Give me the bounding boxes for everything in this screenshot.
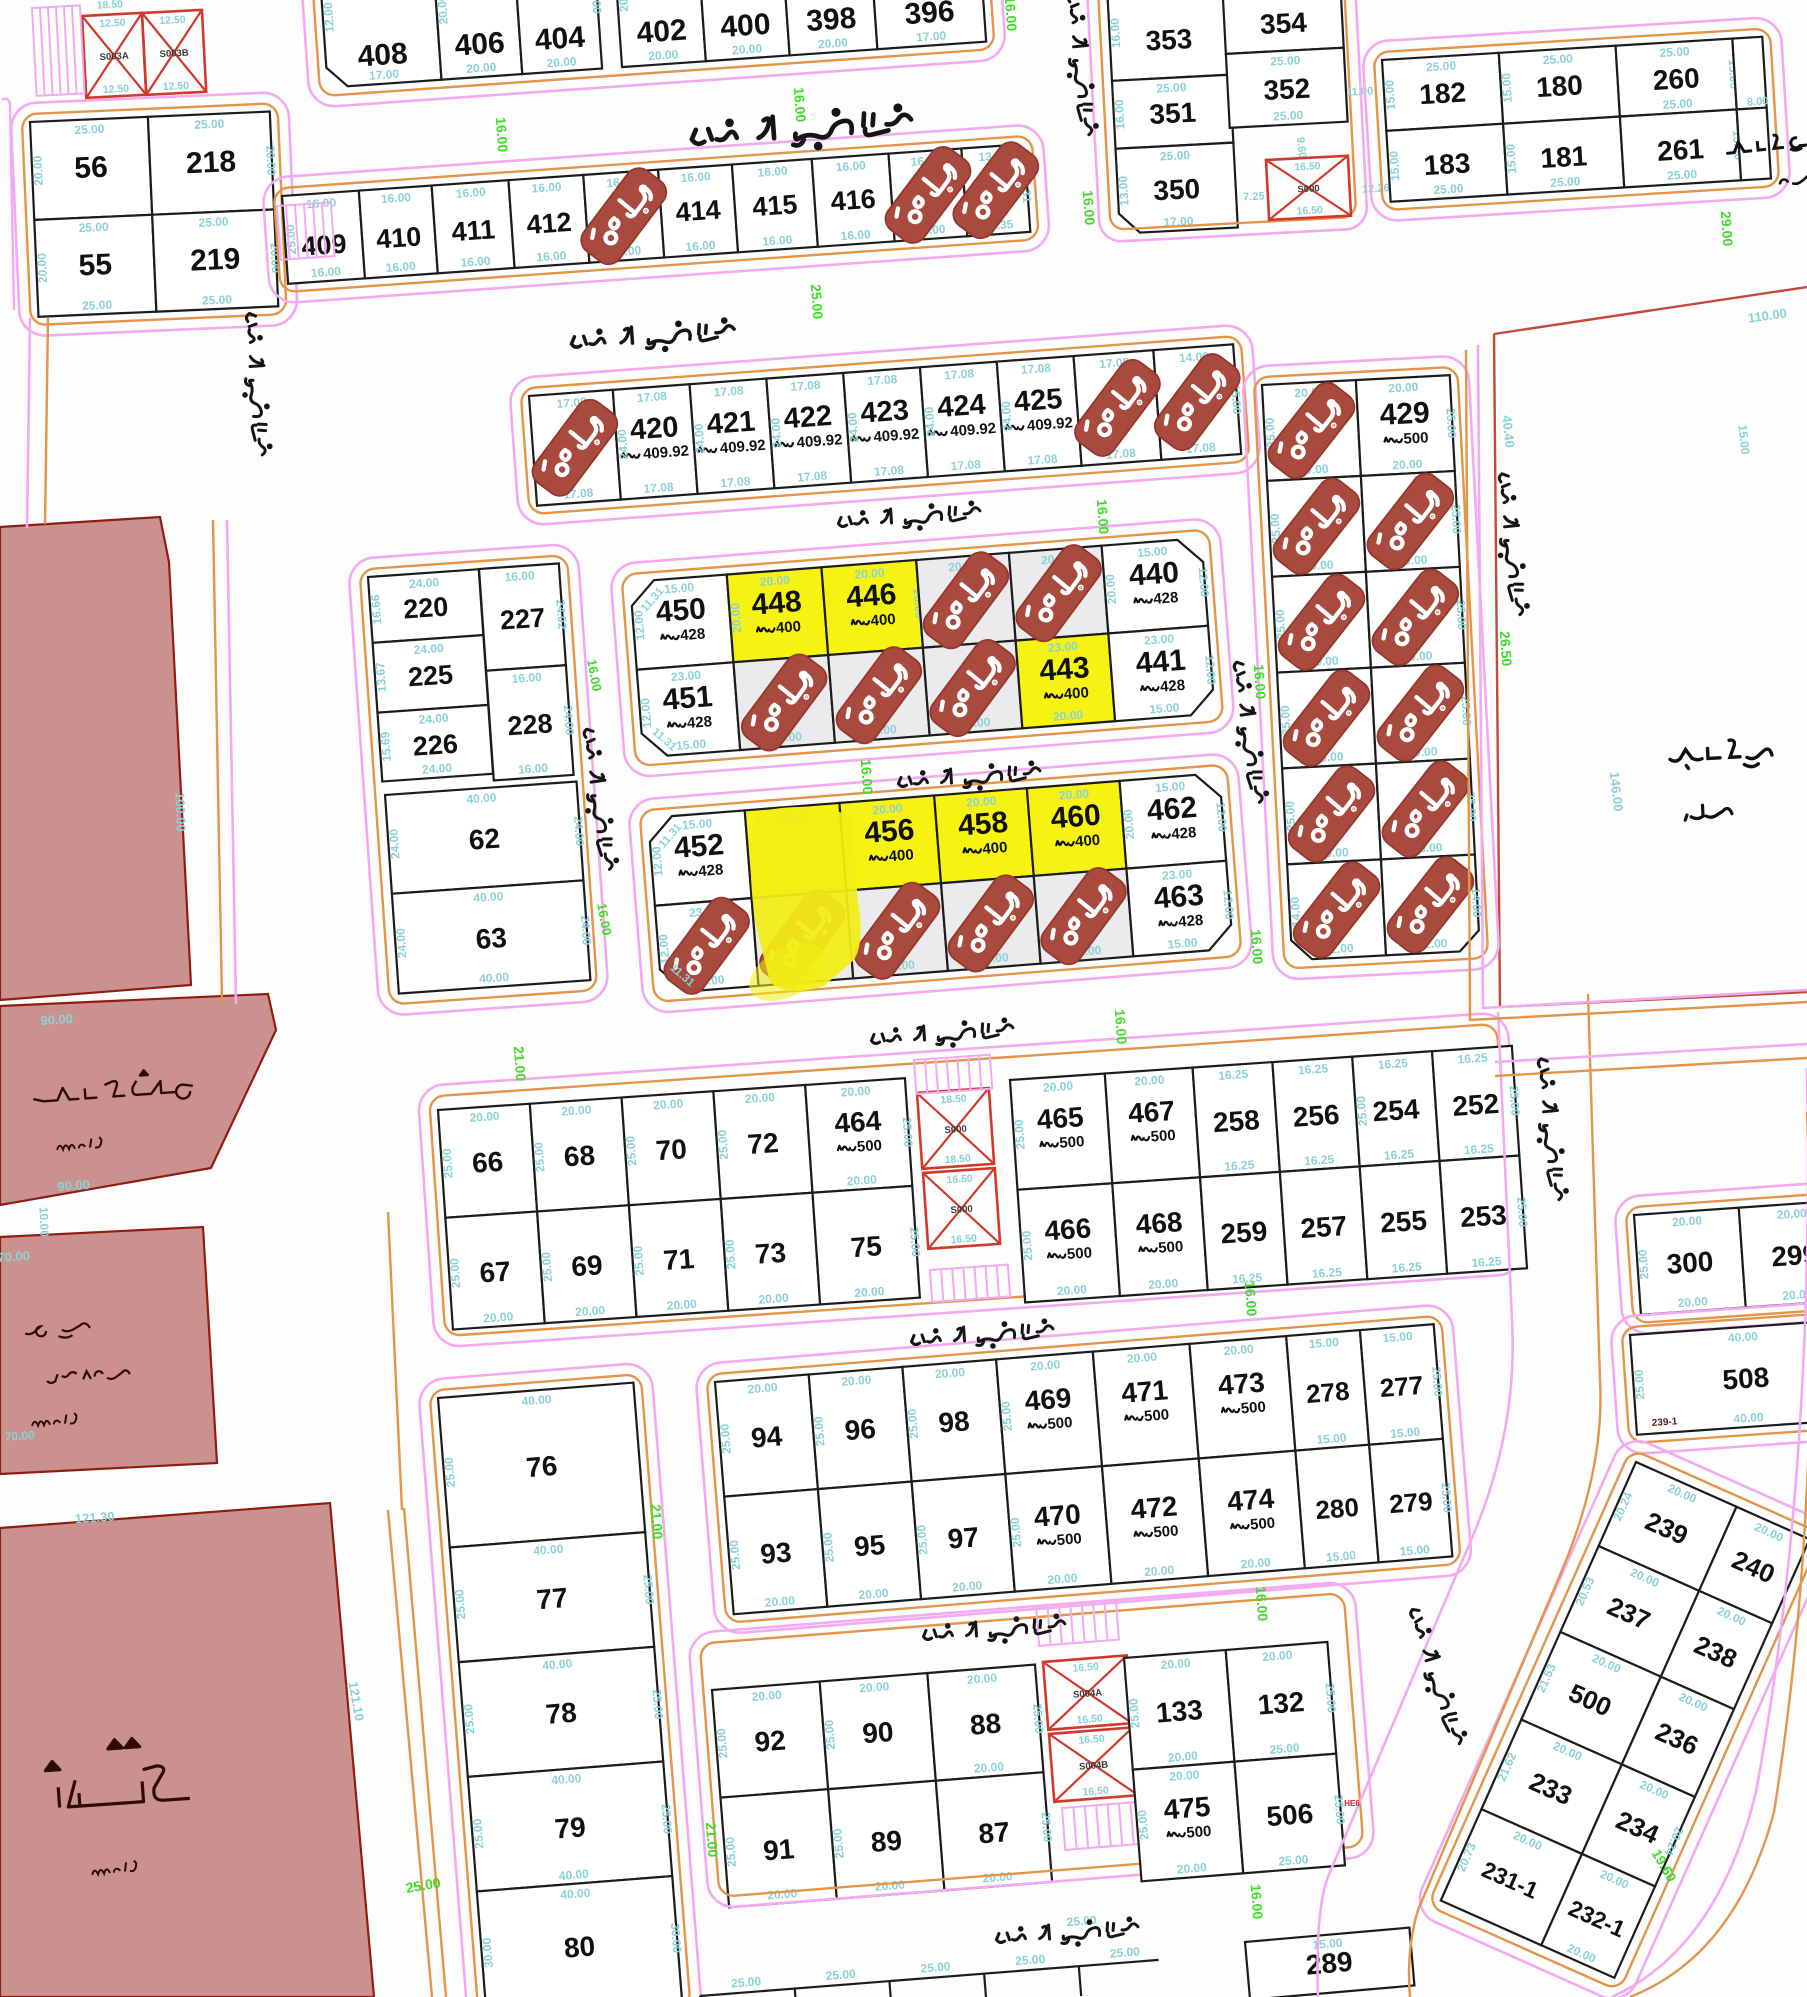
svg-text:25.00: 25.00	[82, 298, 113, 313]
svg-text:23.00: 23.00	[670, 668, 701, 684]
svg-text:20.00: 20.00	[1103, 573, 1119, 604]
svg-text:500: 500	[1249, 1515, 1275, 1534]
svg-text:428: 428	[680, 625, 706, 644]
svg-text:25.00: 25.00	[194, 117, 225, 132]
svg-text:15.00: 15.00	[1167, 935, 1198, 951]
svg-text:25.00: 25.00	[641, 1574, 657, 1605]
svg-text:16.00: 16.00	[1248, 929, 1266, 965]
svg-text:24.00: 24.00	[691, 423, 707, 454]
svg-text:16.00: 16.00	[531, 179, 562, 195]
svg-text:15.00: 15.00	[1382, 1329, 1413, 1345]
svg-text:16.00: 16.00	[835, 158, 866, 174]
svg-text:25.00: 25.00	[1354, 1095, 1370, 1126]
svg-text:25.00: 25.00	[1507, 1085, 1523, 1116]
svg-text:255: 255	[1379, 1205, 1428, 1239]
svg-text:70: 70	[655, 1133, 688, 1166]
svg-text:500: 500	[1153, 1522, 1179, 1541]
svg-text:16.00: 16.00	[511, 670, 542, 686]
svg-text:409.92: 409.92	[950, 420, 997, 440]
svg-text:16.25: 16.25	[1224, 1158, 1255, 1174]
svg-text:15.00: 15.00	[1149, 700, 1180, 716]
svg-text:252: 252	[1451, 1088, 1500, 1122]
svg-text:24.00: 24.00	[386, 828, 402, 859]
svg-text:25.00: 25.00	[920, 1959, 951, 1975]
svg-text:16.25: 16.25	[1218, 1067, 1249, 1083]
svg-text:406: 406	[454, 26, 506, 62]
svg-text:25.00: 25.00	[1433, 181, 1464, 197]
svg-text:20.00: 20.00	[874, 1877, 905, 1893]
svg-text:254: 254	[1372, 1093, 1421, 1127]
svg-text:20.00: 20.00	[561, 1103, 592, 1119]
svg-text:40.00: 40.00	[473, 889, 504, 905]
svg-text:17.08: 17.08	[643, 480, 674, 496]
svg-text:20.00: 20.00	[966, 1671, 997, 1687]
svg-text:451: 451	[661, 680, 713, 717]
svg-text:16.50: 16.50	[946, 1173, 973, 1187]
svg-text:412: 412	[526, 207, 573, 240]
svg-text:40.00: 40.00	[479, 970, 510, 986]
svg-text:20.00: 20.00	[744, 1090, 775, 1106]
svg-text:411: 411	[451, 214, 497, 247]
svg-text:17.08: 17.08	[944, 366, 975, 382]
svg-text:467: 467	[1127, 1095, 1176, 1129]
svg-text:17.08: 17.08	[790, 378, 821, 394]
svg-text:259: 259	[1220, 1215, 1269, 1249]
svg-text:24.00: 24.00	[418, 711, 449, 727]
svg-text:25.00: 25.00	[631, 1245, 647, 1276]
svg-text:12.00: 12.00	[321, 2, 337, 33]
svg-text:500: 500	[1143, 1406, 1169, 1425]
svg-text:443: 443	[1038, 651, 1090, 688]
svg-text:23.00: 23.00	[1047, 639, 1078, 655]
svg-text:15.00: 15.00	[664, 580, 695, 596]
svg-text:16.25: 16.25	[1304, 1152, 1335, 1168]
svg-text:25.00: 25.00	[1278, 1852, 1309, 1868]
svg-text:420: 420	[629, 411, 680, 446]
svg-text:24.00: 24.00	[578, 915, 594, 946]
svg-text:18.50: 18.50	[96, 0, 123, 12]
svg-text:25.00: 25.00	[1156, 80, 1187, 96]
svg-text:25.00: 25.00	[714, 1728, 730, 1759]
svg-text:400: 400	[1075, 832, 1101, 851]
svg-text:97: 97	[947, 1521, 981, 1554]
svg-text:400: 400	[1063, 684, 1089, 703]
svg-text:409.92: 409.92	[643, 442, 690, 462]
svg-text:428: 428	[1171, 824, 1197, 843]
svg-text:227: 227	[499, 603, 546, 636]
svg-text:500: 500	[1158, 1238, 1184, 1257]
svg-text:16.00: 16.00	[1108, 17, 1124, 48]
svg-text:20.00: 20.00	[767, 1886, 798, 1902]
svg-text:20.00: 20.00	[758, 1291, 789, 1307]
svg-text:25.00: 25.00	[461, 1703, 477, 1734]
svg-text:25.00: 25.00	[1030, 1703, 1046, 1734]
svg-text:16.25: 16.25	[1471, 1254, 1502, 1270]
svg-text:15.00: 15.00	[1399, 1542, 1430, 1558]
svg-text:16.00: 16.00	[1253, 1586, 1271, 1622]
svg-text:20.00: 20.00	[854, 1284, 885, 1300]
svg-text:75: 75	[850, 1230, 883, 1263]
svg-text:40.00: 40.00	[533, 1542, 564, 1558]
svg-text:25.00: 25.00	[907, 1226, 923, 1257]
svg-text:465: 465	[1036, 1101, 1085, 1135]
svg-text:20.00: 20.00	[858, 1586, 889, 1602]
svg-text:17.08: 17.08	[713, 383, 744, 399]
svg-text:16.00: 16.00	[1080, 190, 1098, 226]
svg-text:20.00: 20.00	[1160, 1656, 1191, 1672]
svg-text:473: 473	[1217, 1366, 1266, 1401]
svg-text:67: 67	[479, 1255, 512, 1288]
svg-text:20.00: 20.00	[483, 1309, 514, 1325]
svg-text:15.00: 15.00	[1499, 72, 1515, 103]
svg-text:16.25: 16.25	[1384, 1147, 1415, 1163]
svg-text:16.00: 16.00	[385, 259, 416, 275]
svg-text:79: 79	[553, 1811, 586, 1844]
svg-text:16.00: 16.00	[518, 761, 549, 777]
svg-text:16.00: 16.00	[1112, 99, 1128, 130]
svg-text:260: 260	[1652, 62, 1701, 96]
svg-text:409.92: 409.92	[873, 426, 920, 446]
svg-text:25.00: 25.00	[74, 122, 105, 137]
svg-text:12.50: 12.50	[99, 17, 126, 30]
svg-text:506: 506	[1265, 1798, 1314, 1833]
svg-text:90: 90	[861, 1716, 894, 1749]
svg-text:421: 421	[706, 406, 757, 441]
svg-text:132: 132	[1257, 1686, 1306, 1721]
svg-text:25.00: 25.00	[822, 1719, 838, 1750]
svg-text:12.50: 12.50	[159, 14, 186, 27]
svg-text:17.08: 17.08	[950, 457, 981, 473]
svg-text:16.00: 16.00	[1248, 1884, 1266, 1920]
svg-text:352: 352	[1263, 73, 1311, 106]
svg-text:500: 500	[1240, 1398, 1266, 1417]
svg-text:277: 277	[1379, 1370, 1425, 1403]
svg-text:25.00: 25.00	[1550, 174, 1581, 190]
svg-text:12.50: 12.50	[102, 83, 129, 96]
svg-text:261: 261	[1656, 133, 1705, 167]
svg-text:24.00: 24.00	[615, 428, 631, 459]
svg-text:25.00: 25.00	[1109, 1944, 1140, 1960]
svg-text:26.50: 26.50	[1497, 631, 1515, 667]
svg-text:16.00: 16.00	[504, 568, 535, 584]
svg-text:17.00: 17.00	[369, 67, 400, 83]
svg-text:20.00: 20.00	[648, 47, 679, 63]
svg-text:25.00: 25.00	[440, 1148, 456, 1179]
svg-text:428: 428	[1153, 589, 1179, 608]
svg-text:S000: S000	[944, 1124, 967, 1137]
svg-text:16.00: 16.00	[840, 227, 871, 243]
svg-text:29.00: 29.00	[1718, 211, 1736, 247]
svg-text:25.00: 25.00	[723, 1836, 739, 1867]
svg-text:508: 508	[1721, 1361, 1770, 1395]
svg-text:404: 404	[534, 21, 587, 57]
svg-text:24.00: 24.00	[922, 406, 938, 437]
svg-text:226: 226	[412, 729, 459, 762]
svg-text:16.00: 16.00	[791, 87, 809, 123]
svg-text:21.00: 21.00	[648, 1504, 666, 1540]
svg-text:18.50: 18.50	[940, 1093, 967, 1107]
svg-text:20.00: 20.00	[846, 1172, 877, 1188]
svg-text:500: 500	[1186, 1823, 1212, 1842]
svg-text:16.25: 16.25	[1377, 1056, 1408, 1072]
svg-text:353: 353	[1145, 23, 1193, 56]
svg-text:93: 93	[759, 1536, 793, 1569]
svg-text:500: 500	[1059, 1133, 1085, 1152]
svg-text:16.00: 16.00	[757, 164, 788, 180]
svg-text:25.00: 25.00	[715, 1129, 731, 1160]
svg-text:16.00: 16.00	[1242, 1281, 1260, 1317]
svg-text:20.00: 20.00	[732, 41, 763, 57]
svg-text:239-1: 239-1	[1651, 1416, 1678, 1429]
svg-text:25.00: 25.00	[650, 1689, 666, 1720]
svg-text:13.67: 13.67	[373, 662, 389, 693]
svg-text:25.00: 25.00	[531, 1141, 547, 1172]
svg-text:24.00: 24.00	[413, 641, 444, 657]
svg-text:12.00: 12.00	[631, 610, 647, 641]
svg-text:25.00: 25.00	[1429, 1366, 1445, 1397]
svg-text:470: 470	[1033, 1498, 1082, 1533]
svg-text:180: 180	[1535, 69, 1584, 103]
svg-text:278: 278	[1305, 1376, 1351, 1409]
svg-text:475: 475	[1162, 1791, 1211, 1826]
svg-text:20.00: 20.00	[1030, 1357, 1061, 1373]
svg-text:20.00: 20.00	[872, 801, 903, 817]
svg-text:25.00: 25.00	[820, 1532, 836, 1563]
svg-text:20.00: 20.00	[1776, 1206, 1807, 1222]
svg-text:25.00: 25.00	[900, 1117, 916, 1148]
svg-text:24.00: 24.00	[409, 575, 440, 591]
svg-text:441: 441	[1134, 644, 1186, 681]
svg-text:24.00: 24.00	[422, 761, 453, 777]
svg-text:23.00: 23.00	[1162, 866, 1193, 882]
svg-text:30.00: 30.00	[480, 1937, 496, 1968]
svg-text:94: 94	[750, 1420, 784, 1453]
svg-text:16.00: 16.00	[680, 169, 711, 185]
svg-text:12.00: 12.00	[1220, 889, 1236, 920]
svg-text:16.25: 16.25	[1391, 1259, 1422, 1275]
svg-text:17.08: 17.08	[636, 389, 667, 405]
svg-text:25.00: 25.00	[202, 292, 233, 307]
svg-text:25.00: 25.00	[447, 1257, 463, 1288]
svg-text:87: 87	[977, 1816, 1010, 1849]
svg-text:16.00: 16.00	[1251, 664, 1269, 700]
svg-text:25.00: 25.00	[1323, 1682, 1339, 1713]
svg-text:409.92: 409.92	[1026, 414, 1073, 434]
svg-text:400: 400	[719, 8, 771, 44]
svg-text:500: 500	[1150, 1127, 1176, 1146]
svg-text:25.00: 25.00	[1667, 167, 1698, 183]
svg-text:12.50: 12.50	[162, 80, 189, 93]
svg-text:20.00: 20.00	[1167, 1748, 1198, 1764]
svg-text:24.00: 24.00	[999, 400, 1015, 431]
svg-text:398: 398	[805, 2, 857, 38]
svg-text:414: 414	[675, 194, 722, 227]
svg-text:24.00: 24.00	[561, 705, 577, 736]
svg-text:12.00: 12.00	[1196, 566, 1212, 597]
svg-text:25.00: 25.00	[811, 1415, 827, 1446]
svg-text:10.00: 10.00	[36, 1207, 51, 1238]
svg-text:20.00: 20.00	[1677, 1294, 1708, 1310]
svg-text:25.00: 25.00	[1008, 1516, 1024, 1547]
svg-text:472: 472	[1129, 1490, 1178, 1525]
svg-text:40.00: 40.00	[521, 1392, 552, 1408]
svg-text:400: 400	[982, 839, 1008, 858]
svg-text:20.00: 20.00	[1126, 1349, 1157, 1365]
svg-text:446: 446	[845, 578, 897, 615]
svg-text:20.00: 20.00	[1176, 1860, 1207, 1876]
svg-text:25.00: 25.00	[1269, 1740, 1300, 1756]
svg-text:409.92: 409.92	[796, 431, 843, 451]
svg-text:11.00: 11.00	[1346, 85, 1374, 98]
svg-text:279: 279	[1388, 1486, 1434, 1519]
svg-text:25.00: 25.00	[78, 220, 109, 235]
svg-text:HE6: HE6	[1344, 1799, 1360, 1808]
svg-text:98: 98	[937, 1405, 971, 1438]
svg-text:18.50: 18.50	[944, 1152, 971, 1166]
svg-text:20.00: 20.00	[1240, 1555, 1271, 1571]
svg-text:30.00: 30.00	[668, 1922, 684, 1953]
svg-text:256: 256	[1292, 1099, 1341, 1133]
svg-text:17.00: 17.00	[916, 28, 947, 44]
svg-text:40.00: 40.00	[560, 1886, 591, 1902]
svg-text:20.00: 20.00	[952, 1578, 983, 1594]
svg-text:25.00: 25.00	[1464, 791, 1480, 822]
svg-text:17.08: 17.08	[873, 463, 904, 479]
svg-text:7.25: 7.25	[1243, 190, 1265, 203]
svg-text:25.00: 25.00	[470, 1818, 486, 1849]
svg-text:448: 448	[750, 585, 802, 622]
svg-text:16.00: 16.00	[493, 117, 511, 153]
svg-text:460: 460	[1049, 799, 1101, 836]
svg-text:16.00: 16.00	[762, 233, 793, 249]
svg-text:20.00: 20.00	[1144, 1563, 1175, 1579]
svg-text:25.00: 25.00	[1126, 1698, 1142, 1729]
svg-text:25.00: 25.00	[998, 1400, 1014, 1431]
svg-text:16.25: 16.25	[1298, 1061, 1329, 1077]
svg-text:20.00: 20.00	[1134, 1072, 1165, 1088]
svg-text:456: 456	[863, 813, 915, 850]
svg-text:16.50: 16.50	[1072, 1661, 1099, 1675]
svg-text:416: 416	[830, 184, 877, 217]
svg-text:90.00: 90.00	[40, 1011, 74, 1028]
svg-text:17.08: 17.08	[1027, 451, 1058, 467]
svg-text:40.00: 40.00	[1733, 1410, 1764, 1426]
svg-text:100.00: 100.00	[172, 792, 188, 832]
svg-text:78: 78	[544, 1697, 577, 1730]
svg-text:428: 428	[686, 713, 712, 732]
svg-text:16.00: 16.00	[1002, 0, 1020, 32]
svg-text:20.00: 20.00	[1043, 1079, 1074, 1095]
svg-text:500: 500	[1047, 1414, 1073, 1433]
svg-text:25.00: 25.00	[1012, 1119, 1028, 1150]
svg-text:15.00: 15.00	[1308, 1335, 1339, 1351]
svg-text:422: 422	[783, 400, 834, 435]
svg-text:91: 91	[762, 1833, 795, 1866]
svg-text:76: 76	[525, 1450, 558, 1483]
svg-text:15.00: 15.00	[1325, 1548, 1356, 1564]
svg-text:40.00: 40.00	[466, 790, 497, 806]
svg-text:12.00: 12.00	[649, 846, 665, 877]
svg-text:95: 95	[853, 1529, 887, 1562]
svg-text:20.00: 20.00	[615, 0, 631, 12]
svg-text:428: 428	[1178, 912, 1204, 931]
svg-text:20.00: 20.00	[1056, 1282, 1087, 1298]
svg-text:25.00: 25.00	[1443, 408, 1459, 439]
svg-text:16.50: 16.50	[1296, 204, 1323, 217]
svg-text:25.00: 25.00	[727, 1539, 743, 1570]
svg-text:16.66: 16.66	[368, 594, 384, 625]
svg-text:20.00: 20.00	[546, 54, 577, 70]
svg-text:15.00: 15.00	[1387, 150, 1403, 181]
svg-text:25.00: 25.00	[198, 214, 229, 229]
svg-text:466: 466	[1043, 1212, 1092, 1246]
svg-text:20.00: 20.00	[469, 1109, 500, 1125]
svg-text:12.00: 12.00	[1214, 801, 1230, 832]
svg-text:96: 96	[844, 1413, 878, 1446]
svg-text:S000: S000	[1297, 183, 1320, 195]
svg-text:20.00: 20.00	[764, 1593, 795, 1609]
svg-text:458: 458	[957, 806, 1009, 843]
svg-text:350: 350	[1153, 173, 1201, 206]
svg-text:24.00: 24.00	[393, 927, 409, 958]
svg-text:15.00: 15.00	[1316, 1431, 1347, 1447]
svg-text:8.00: 8.00	[1747, 95, 1769, 108]
svg-text:409.92: 409.92	[719, 437, 766, 457]
svg-text:70.00: 70.00	[0, 1248, 30, 1265]
svg-text:15.00: 15.00	[1382, 79, 1398, 110]
svg-text:S003A: S003A	[99, 51, 129, 64]
svg-text:500: 500	[856, 1137, 882, 1156]
svg-text:428: 428	[698, 861, 724, 880]
svg-text:257: 257	[1299, 1210, 1348, 1244]
svg-text:21.00: 21.00	[703, 1822, 721, 1858]
svg-text:300: 300	[1666, 1246, 1715, 1280]
svg-text:20.00: 20.00	[263, 145, 278, 176]
svg-text:25.00: 25.00	[539, 1251, 555, 1282]
svg-text:63: 63	[475, 922, 508, 955]
svg-text:55: 55	[78, 248, 113, 282]
svg-text:25.00: 25.00	[1438, 1482, 1454, 1513]
svg-text:289: 289	[1305, 1946, 1354, 1981]
svg-text:25.00: 25.00	[717, 1423, 733, 1454]
svg-text:20.00: 20.00	[1148, 1276, 1179, 1292]
svg-text:500: 500	[1066, 1244, 1092, 1263]
svg-text:25.00: 25.00	[905, 1408, 921, 1439]
svg-text:16.00: 16.00	[536, 248, 567, 264]
svg-text:80: 80	[563, 1930, 596, 1963]
svg-text:20.00: 20.00	[759, 573, 790, 589]
svg-text:56: 56	[74, 151, 109, 185]
svg-text:20.00: 20.00	[575, 1303, 606, 1319]
svg-text:25.00: 25.00	[1635, 1249, 1651, 1280]
svg-text:20.00: 20.00	[35, 252, 50, 283]
svg-text:12.26: 12.26	[1362, 182, 1390, 195]
svg-text:225: 225	[407, 659, 454, 692]
svg-text:25.00: 25.00	[659, 1803, 675, 1834]
svg-text:468: 468	[1135, 1206, 1184, 1240]
svg-text:16.50: 16.50	[1294, 160, 1321, 173]
svg-text:228: 228	[506, 708, 553, 741]
svg-text:25.00: 25.00	[1449, 504, 1465, 535]
svg-text:20.00: 20.00	[30, 155, 45, 186]
svg-text:25.00: 25.00	[1514, 1197, 1530, 1228]
svg-text:25.00: 25.00	[1015, 1952, 1046, 1968]
svg-text:25.00: 25.00	[830, 1828, 846, 1859]
svg-text:299: 299	[1770, 1238, 1807, 1272]
svg-text:20.00: 20.00	[817, 35, 848, 51]
svg-text:13.00: 13.00	[1116, 175, 1132, 206]
svg-text:410: 410	[375, 221, 422, 254]
